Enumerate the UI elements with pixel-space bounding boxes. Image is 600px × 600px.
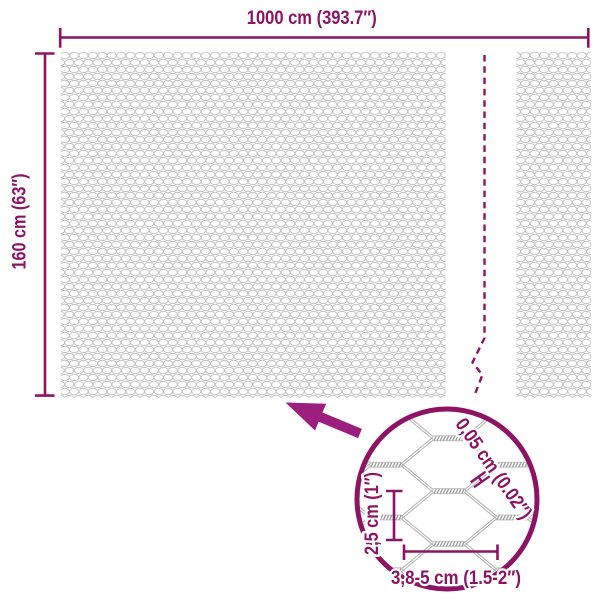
svg-text:1000 cm (393.7″): 1000 cm (393.7″) bbox=[247, 7, 377, 29]
svg-text:160 cm (63″): 160 cm (63″) bbox=[9, 174, 31, 270]
svg-text:2,5 cm (1″): 2,5 cm (1″) bbox=[361, 472, 383, 555]
svg-text:3,8-5 cm (1.5-2″): 3,8-5 cm (1.5-2″) bbox=[391, 567, 521, 589]
